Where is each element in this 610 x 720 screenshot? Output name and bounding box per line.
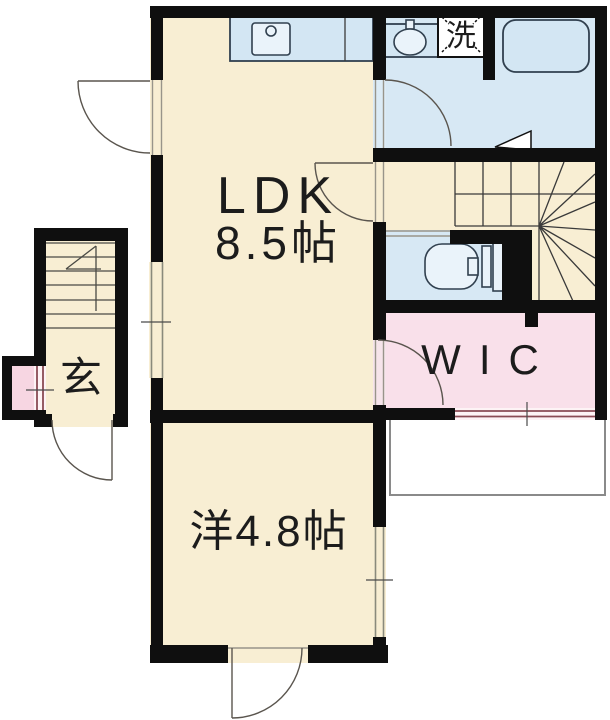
wall-bath-hall bbox=[373, 148, 607, 162]
kitchen-counter bbox=[230, 17, 373, 61]
laundry-label: 洗 bbox=[446, 20, 476, 53]
wall-nook-left bbox=[2, 356, 12, 420]
wall-stair-stub bbox=[525, 300, 538, 327]
ldk-size-label: 8.5帖 bbox=[215, 217, 341, 269]
wall-wash-bath bbox=[483, 6, 495, 80]
washbasin bbox=[394, 29, 426, 55]
wall-ldk-western bbox=[150, 410, 385, 423]
wic-label: WIC bbox=[421, 336, 557, 383]
toilet bbox=[425, 242, 505, 291]
ldk-west-door-swing bbox=[78, 81, 150, 153]
faucet-icon bbox=[266, 26, 276, 36]
room-fills bbox=[2, 6, 607, 663]
entrance-label: 玄 bbox=[60, 354, 102, 401]
entrance-door-gap bbox=[52, 414, 113, 427]
bathtub bbox=[503, 20, 589, 72]
toilet-seat-step bbox=[468, 258, 478, 275]
ldk-room bbox=[150, 6, 385, 663]
basin-tap bbox=[406, 20, 414, 29]
nook-window bbox=[34, 366, 46, 410]
washbasin-counter bbox=[385, 20, 438, 57]
wall-entrance-right bbox=[115, 228, 128, 427]
balcony bbox=[390, 420, 605, 495]
wall-entrance-top bbox=[34, 228, 128, 241]
floor-plan-drawing: LDK 8.5帖 洋4.8帖 WIC 玄 洗 bbox=[0, 0, 610, 720]
toilet-tank bbox=[482, 246, 491, 287]
entrance-door-swing bbox=[52, 420, 112, 480]
wall-wic-top bbox=[373, 300, 607, 313]
wic-balcony-window bbox=[455, 408, 595, 420]
floor-plan: LDK 8.5帖 洋4.8帖 WIC 玄 洗 bbox=[0, 0, 610, 720]
wall-east bbox=[595, 6, 607, 420]
western-room-label: 洋4.8帖 bbox=[189, 507, 348, 556]
